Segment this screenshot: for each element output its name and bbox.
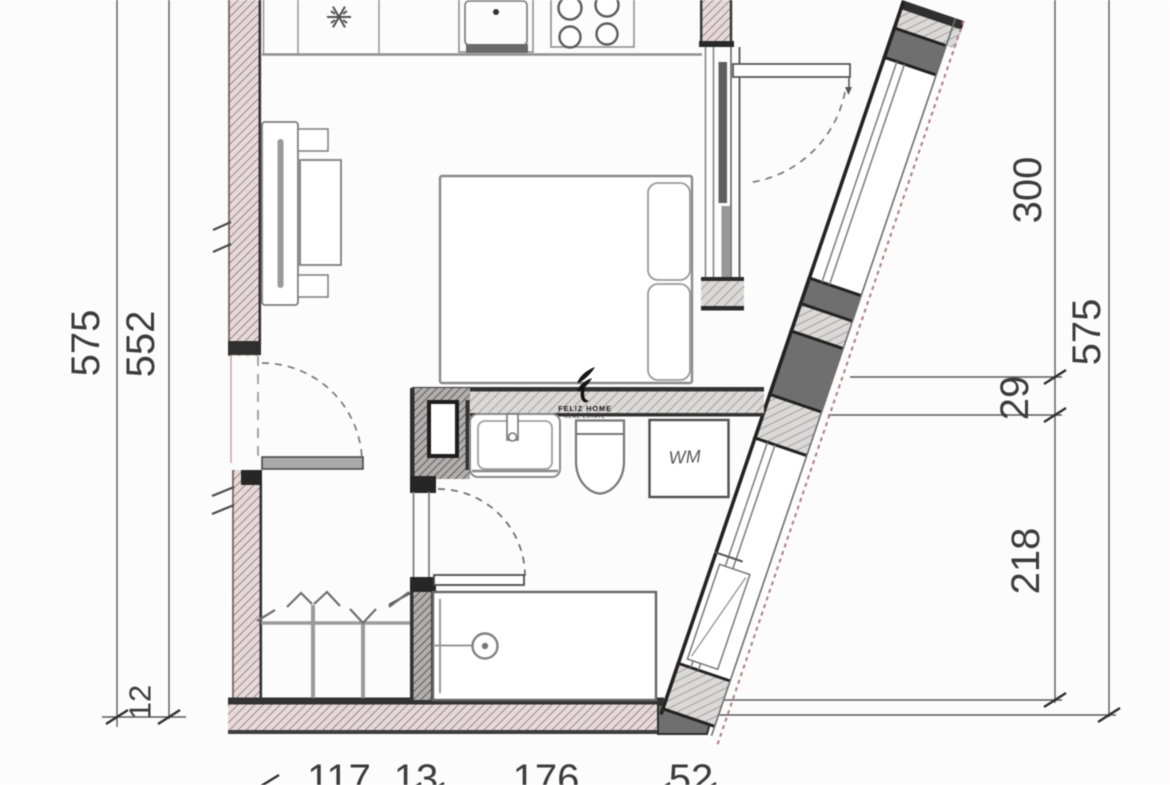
svg-text:52: 52 — [669, 757, 714, 785]
svg-text:552: 552 — [119, 311, 163, 378]
svg-text:117: 117 — [307, 757, 371, 785]
svg-text:REAL ESTATE: REAL ESTATE — [564, 414, 605, 419]
svg-text:218: 218 — [1004, 528, 1048, 595]
svg-text:13: 13 — [394, 757, 439, 785]
svg-text:12: 12 — [123, 685, 158, 719]
svg-text:WM: WM — [668, 446, 701, 468]
svg-text:575: 575 — [64, 310, 108, 377]
svg-text:FELIZ HOME: FELIZ HOME — [558, 404, 612, 413]
svg-text:300: 300 — [1006, 157, 1050, 224]
svg-text:176: 176 — [513, 757, 580, 785]
svg-text:575: 575 — [1065, 299, 1109, 366]
svg-text:29: 29 — [993, 376, 1037, 421]
